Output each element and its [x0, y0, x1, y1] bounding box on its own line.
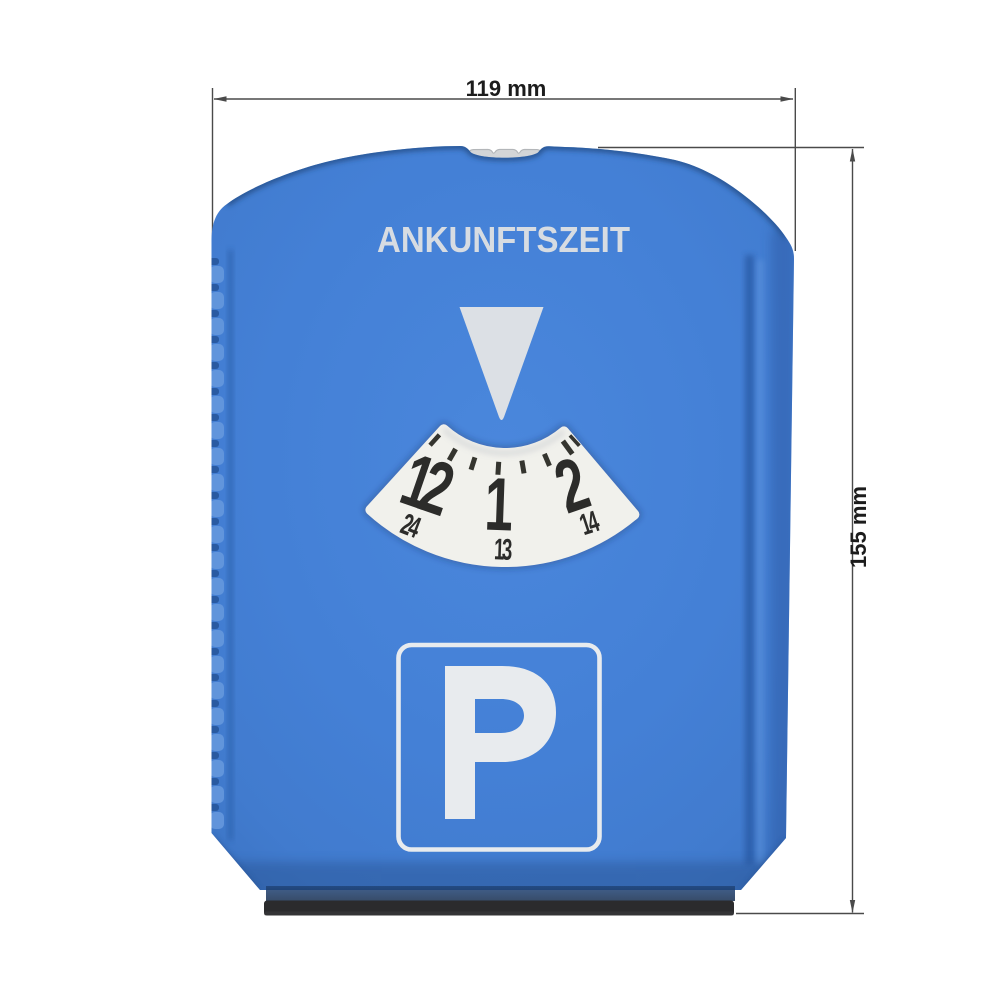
svg-text:155 mm: 155 mm [846, 486, 871, 568]
svg-text:119 mm: 119 mm [466, 76, 547, 101]
svg-text:ANKUNFTSZEIT: ANKUNFTSZEIT [377, 219, 630, 260]
